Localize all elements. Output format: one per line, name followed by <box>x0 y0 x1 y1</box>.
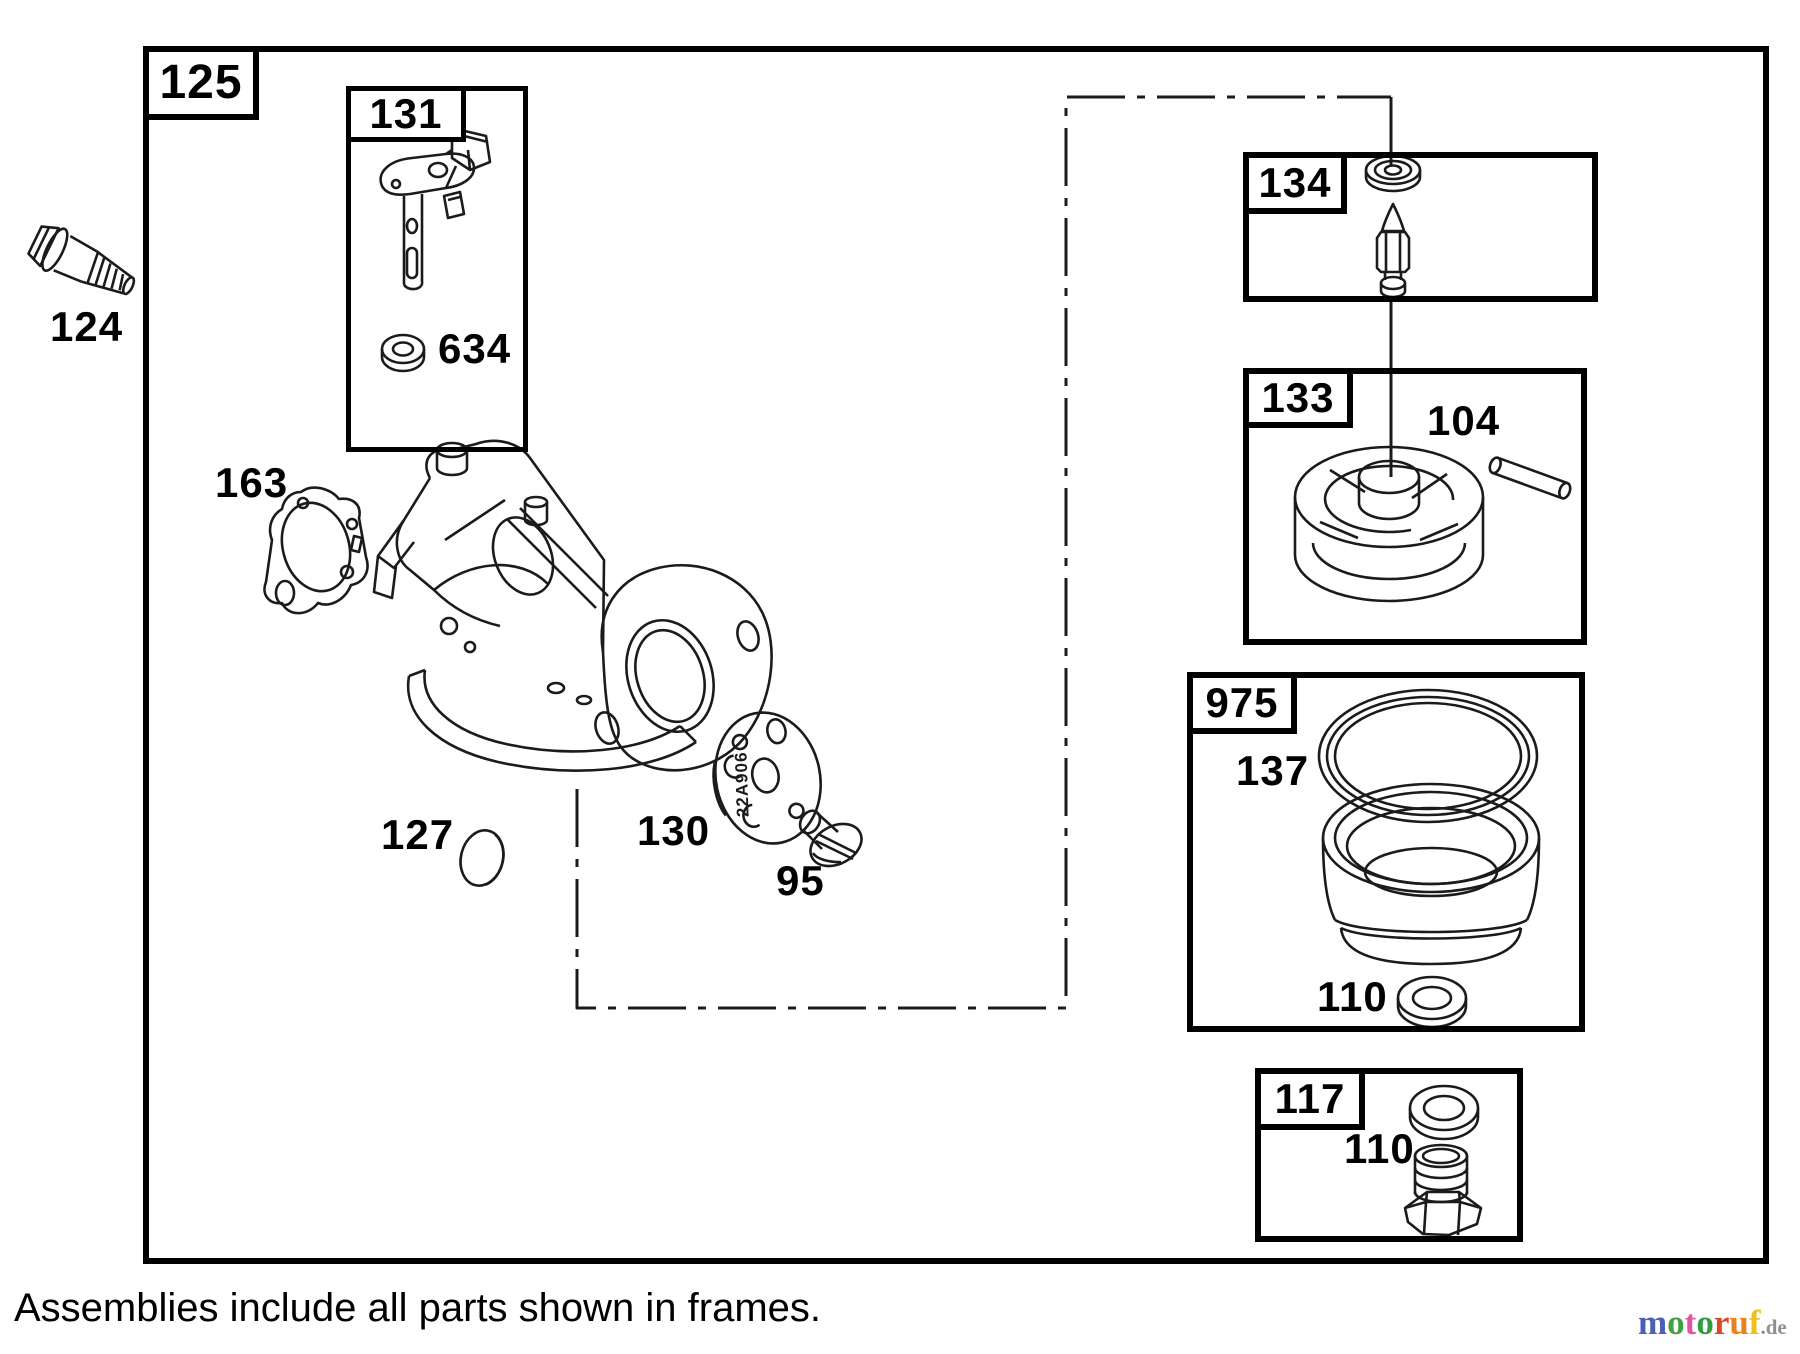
logo-suffix: .de <box>1760 1315 1786 1339</box>
part-label-95: 95 <box>776 860 825 902</box>
part-label-110-drain: 110 <box>1344 1128 1415 1170</box>
frame-label-133: 133 <box>1243 368 1353 428</box>
part-label-634: 634 <box>438 328 511 370</box>
part-124-bolt-drawing <box>25 219 142 308</box>
parts-diagram-canvas: 22A906 <box>0 0 1800 1354</box>
frame-label-975: 975 <box>1187 672 1297 734</box>
frame-label-134-text: 134 <box>1258 162 1331 204</box>
footer-note: Assemblies include all parts shown in fr… <box>14 1286 821 1330</box>
frame-label-125-text: 125 <box>159 59 242 107</box>
logo-letter-f: f <box>1749 1303 1761 1342</box>
frame-label-134: 134 <box>1243 152 1347 214</box>
frame-label-975-text: 975 <box>1205 682 1278 724</box>
part-label-127: 127 <box>381 814 454 856</box>
part-label-137: 137 <box>1236 750 1309 792</box>
part-label-110-bowl: 110 <box>1317 976 1388 1018</box>
frame-label-117: 117 <box>1255 1068 1365 1130</box>
frame-label-125: 125 <box>143 46 259 120</box>
frame-label-133-text: 133 <box>1261 377 1334 419</box>
part-label-163: 163 <box>215 462 288 504</box>
part-label-124: 124 <box>50 306 123 348</box>
frame-label-131-text: 131 <box>369 93 442 135</box>
logo-letter-o2: o <box>1696 1303 1714 1342</box>
logo-letter-m: m <box>1638 1303 1667 1342</box>
frame-label-117-text: 117 <box>1275 1078 1346 1120</box>
part-label-130: 130 <box>637 810 710 852</box>
part-label-104: 104 <box>1427 400 1500 442</box>
logo-letter-t: t <box>1685 1303 1697 1342</box>
logo-letter-u: u <box>1729 1303 1748 1342</box>
logo-letter-r: r <box>1714 1303 1730 1342</box>
logo-letter-o1: o <box>1667 1303 1685 1342</box>
frame-label-131: 131 <box>346 86 466 142</box>
motoruf-logo: motoruf.de <box>1638 1302 1798 1344</box>
